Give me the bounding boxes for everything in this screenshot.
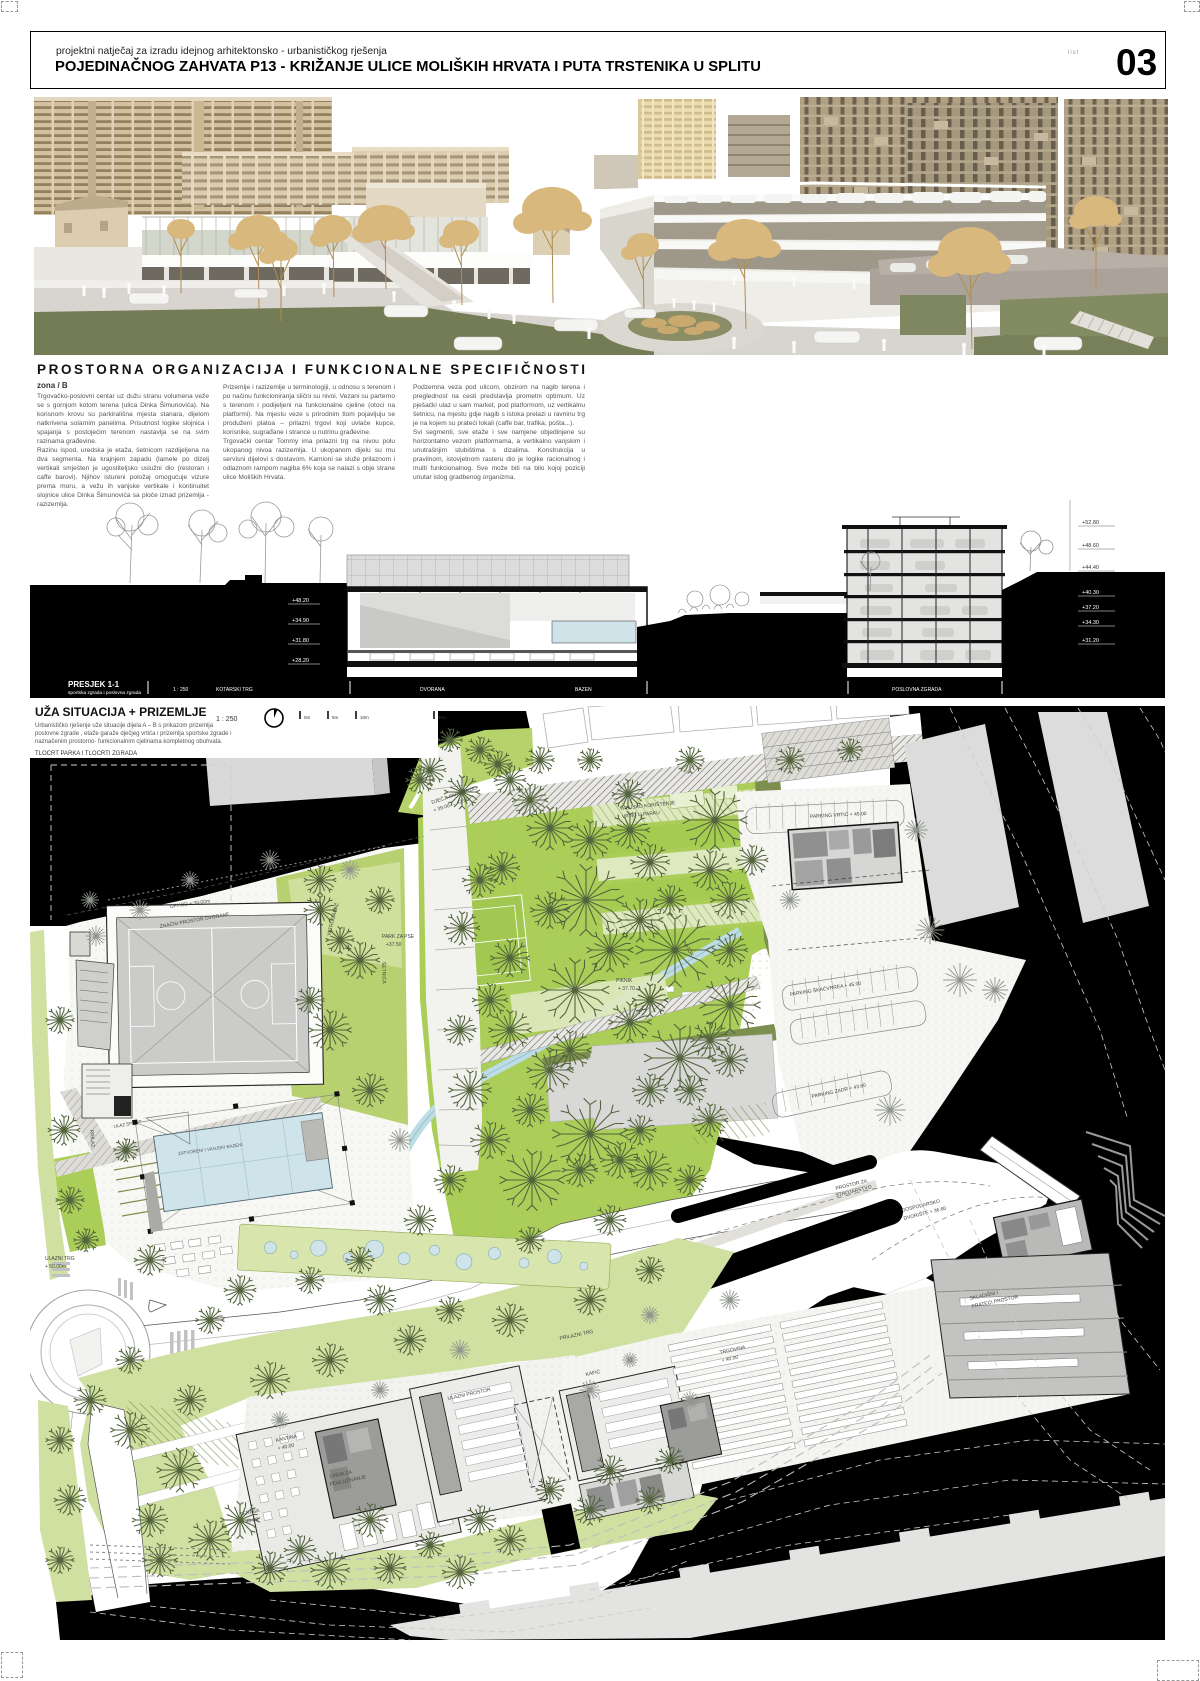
svg-text:+31.20: +31.20 — [1082, 638, 1099, 644]
svg-text:poslovne zgrade , etaže garaže: poslovne zgrade , etaže garaže dječjeg v… — [35, 731, 231, 737]
svg-text:ŠETNICA: ŠETNICA — [380, 962, 388, 985]
svg-text:+37.20: +37.20 — [1082, 605, 1099, 611]
svg-text:5m: 5m — [332, 715, 339, 720]
svg-text:+ 37.70: + 37.70 — [618, 986, 635, 992]
svg-text:+48.20: +48.20 — [292, 598, 309, 604]
svg-text:naznačenim prostorno- funkcion: naznačenim prostorno- funkcionalnim cjel… — [35, 739, 223, 745]
svg-text:+40.30: +40.30 — [1082, 590, 1099, 596]
svg-text:TLOCRT PARKA I TLOCRTI ZGRADA: TLOCRT PARKA I TLOCRTI ZGRADA — [35, 751, 137, 757]
svg-text:0m: 0m — [304, 715, 311, 720]
svg-text:1 : 250: 1 : 250 — [173, 687, 189, 693]
svg-text:sportska zgrada i poslovna zgr: sportska zgrada i poslovna zgrada — [68, 690, 141, 696]
svg-text:PARK ZA PSE: PARK ZA PSE — [382, 934, 415, 940]
svg-text:PIKNIK: PIKNIK — [616, 978, 633, 984]
svg-text:DVORANA: DVORANA — [420, 687, 445, 693]
svg-text:+31.80: +31.80 — [292, 638, 309, 644]
svg-text:PRESJEK 1-1: PRESJEK 1-1 — [68, 680, 120, 689]
svg-text:+52.80: +52.80 — [1082, 520, 1099, 526]
svg-text:+28.20: +28.20 — [292, 658, 309, 664]
svg-text:+34.90: +34.90 — [292, 618, 309, 624]
svg-text:ULAZNI TRG: ULAZNI TRG — [45, 1256, 75, 1262]
svg-text:BAZEN: BAZEN — [575, 687, 592, 693]
svg-text:UŽA SITUACIJA + PRIZEMLJE: UŽA SITUACIJA + PRIZEMLJE — [35, 704, 206, 719]
svg-text:+34.30: +34.30 — [1082, 620, 1099, 626]
svg-text:+48.60: +48.60 — [1082, 543, 1099, 549]
svg-text:10m: 10m — [360, 715, 369, 720]
svg-text:+44.40: +44.40 — [1082, 565, 1099, 571]
svg-text:KOTARSKI TRG: KOTARSKI TRG — [216, 687, 253, 693]
svg-text:1 : 250: 1 : 250 — [216, 716, 238, 723]
svg-text:+37.50: +37.50 — [386, 942, 402, 948]
svg-text:25m: 25m — [438, 715, 447, 720]
svg-text:POSLOVNA ZGRADA: POSLOVNA ZGRADA — [892, 687, 942, 693]
svg-text:Urbanističko rješenje uže situ: Urbanističko rješenje uže situacije dije… — [35, 723, 214, 729]
svg-text:+ 50.00m: + 50.00m — [45, 1264, 66, 1270]
